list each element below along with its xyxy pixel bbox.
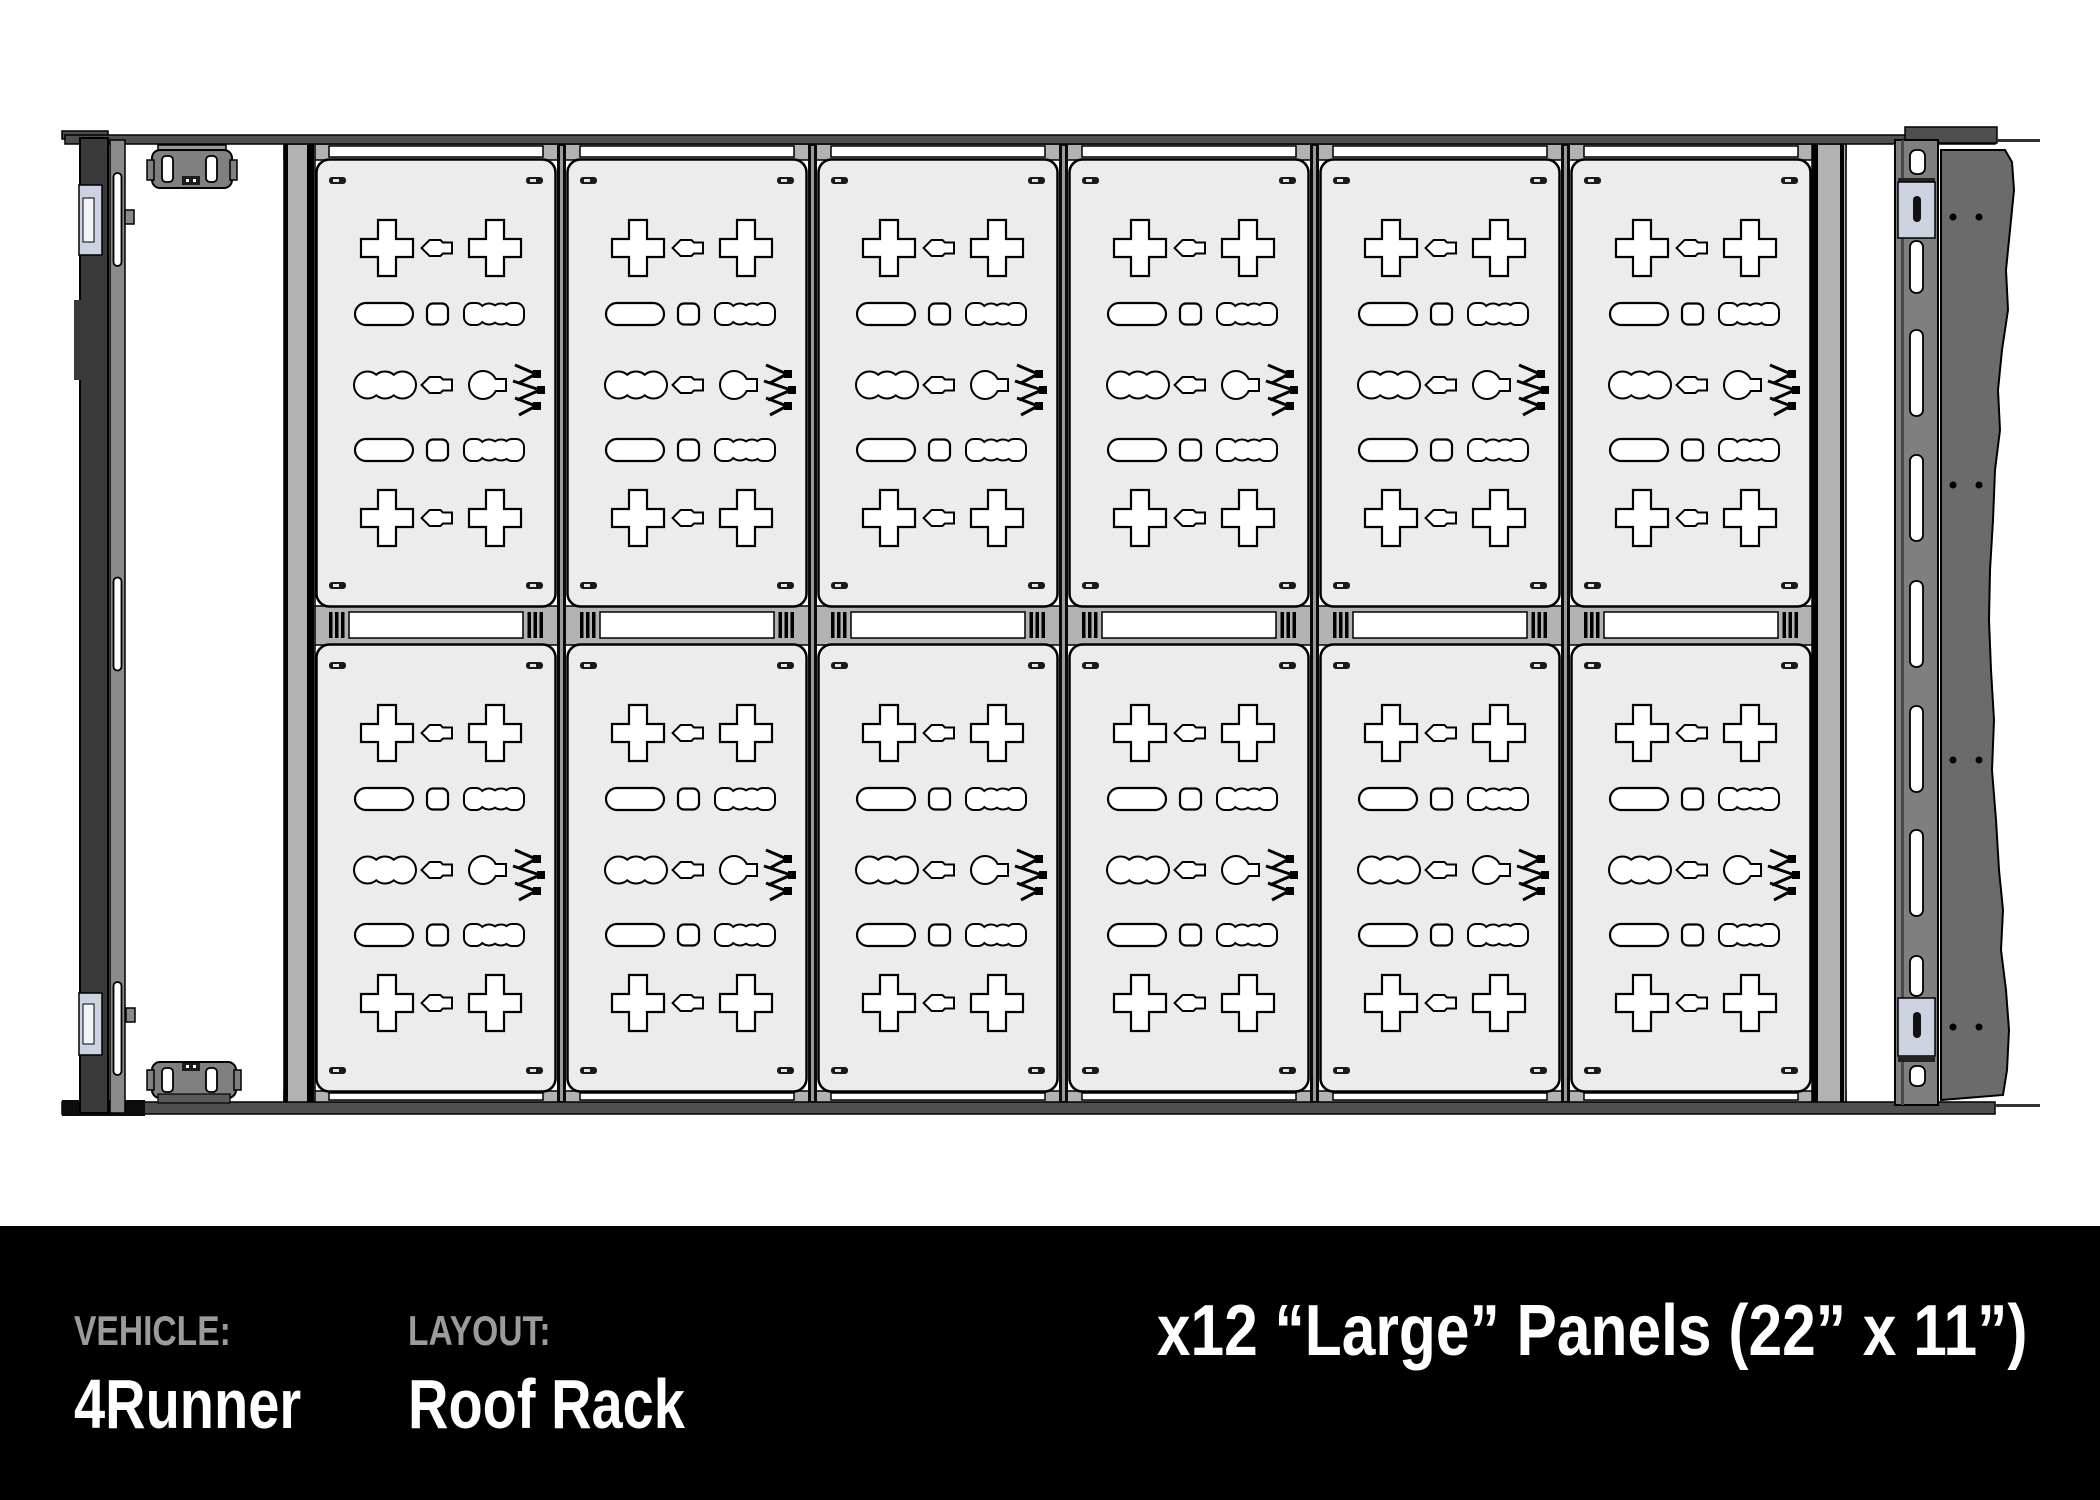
rivet-dot (1976, 214, 1983, 221)
vehicle-value: 4Runner (74, 1369, 301, 1439)
rack-panel (317, 160, 556, 607)
rivet-dot (1950, 1024, 1957, 1031)
left-end-rail (284, 144, 315, 1103)
rivet-dot (1950, 757, 1957, 764)
left-bracket-top-window (83, 198, 94, 242)
layout-value: Roof Rack (408, 1369, 685, 1439)
right-end-rail (1812, 144, 1846, 1103)
bottom-edge-line (1995, 1104, 2040, 1107)
clamp-base (158, 1094, 230, 1103)
rack-panel (317, 645, 556, 1092)
footer-bar: VEHICLE: 4Runner LAYOUT: Roof Rack x12 “… (0, 1226, 2100, 1500)
vehicle-label: VEHICLE: (74, 1310, 231, 1352)
right-bracket-bottom-line (1898, 1056, 1935, 1062)
rack-panel (568, 160, 807, 607)
wind-fairing (1941, 150, 2014, 1100)
panel-separator-rail (557, 144, 566, 1103)
right-bracket-bottom-slot (1913, 1012, 1921, 1038)
right-bracket-top-slot (1913, 196, 1921, 222)
top-edge-line (1997, 139, 2040, 142)
left-rail-notch (74, 300, 82, 380)
panel-separator-rail (808, 144, 817, 1103)
crossbar-top (65, 135, 1995, 144)
clamp-slot (162, 1068, 173, 1092)
left-strip-tab-bottom (126, 1008, 135, 1022)
clamp-ear-right (234, 1070, 241, 1090)
panel-separator-rail (1059, 144, 1068, 1103)
rack-panel (1321, 645, 1560, 1092)
right-rail-hole-bottom (1910, 1066, 1925, 1086)
clamp-mark (182, 1063, 200, 1071)
panel-separator-rail (1561, 144, 1570, 1103)
clamp-slot (206, 156, 217, 182)
right-rail-slots (1910, 241, 1923, 996)
rack-panel (819, 645, 1058, 1092)
mounting-bracket-bottom (147, 1062, 241, 1103)
rivet-dot (1976, 482, 1983, 489)
rack-panel (568, 645, 807, 1092)
rivet-dot (1976, 757, 1983, 764)
rack-panel (1321, 160, 1560, 607)
rack-panel (1070, 160, 1309, 607)
left-rail (74, 138, 135, 1113)
rack-drawing (0, 0, 2100, 1226)
right-rail-hole-top (1910, 150, 1925, 174)
rack-panel (1070, 645, 1309, 1092)
rack-panel (1572, 160, 1811, 607)
right-rail-edge-line (1901, 140, 1904, 1105)
clamp-slot (206, 1068, 217, 1092)
panels-note: x12 “Large” Panels (22” x 11”) (1157, 1295, 2028, 1367)
left-bracket-bottom-window (83, 1004, 94, 1044)
mounting-bracket-top (147, 145, 237, 188)
crossbar-bottom (62, 1102, 1995, 1114)
clamp-slot (162, 156, 173, 182)
rivet-dot (1976, 1024, 1983, 1031)
rack-panel (1572, 645, 1811, 1092)
clamp-ear-left (147, 160, 154, 180)
clamp-mark (182, 176, 200, 185)
rack-panel (819, 160, 1058, 607)
rivet-dot (1950, 214, 1957, 221)
layout-label: LAYOUT: (408, 1310, 551, 1352)
page: VEHICLE: 4Runner LAYOUT: Roof Rack x12 “… (0, 0, 2100, 1500)
panel-separator-rail (1310, 144, 1319, 1103)
clamp-ear-right (230, 160, 237, 180)
rivet-dot (1950, 482, 1957, 489)
clamp-ear-left (147, 1070, 154, 1090)
left-strip-tab-top (125, 210, 134, 224)
right-rail (1895, 140, 1938, 1105)
